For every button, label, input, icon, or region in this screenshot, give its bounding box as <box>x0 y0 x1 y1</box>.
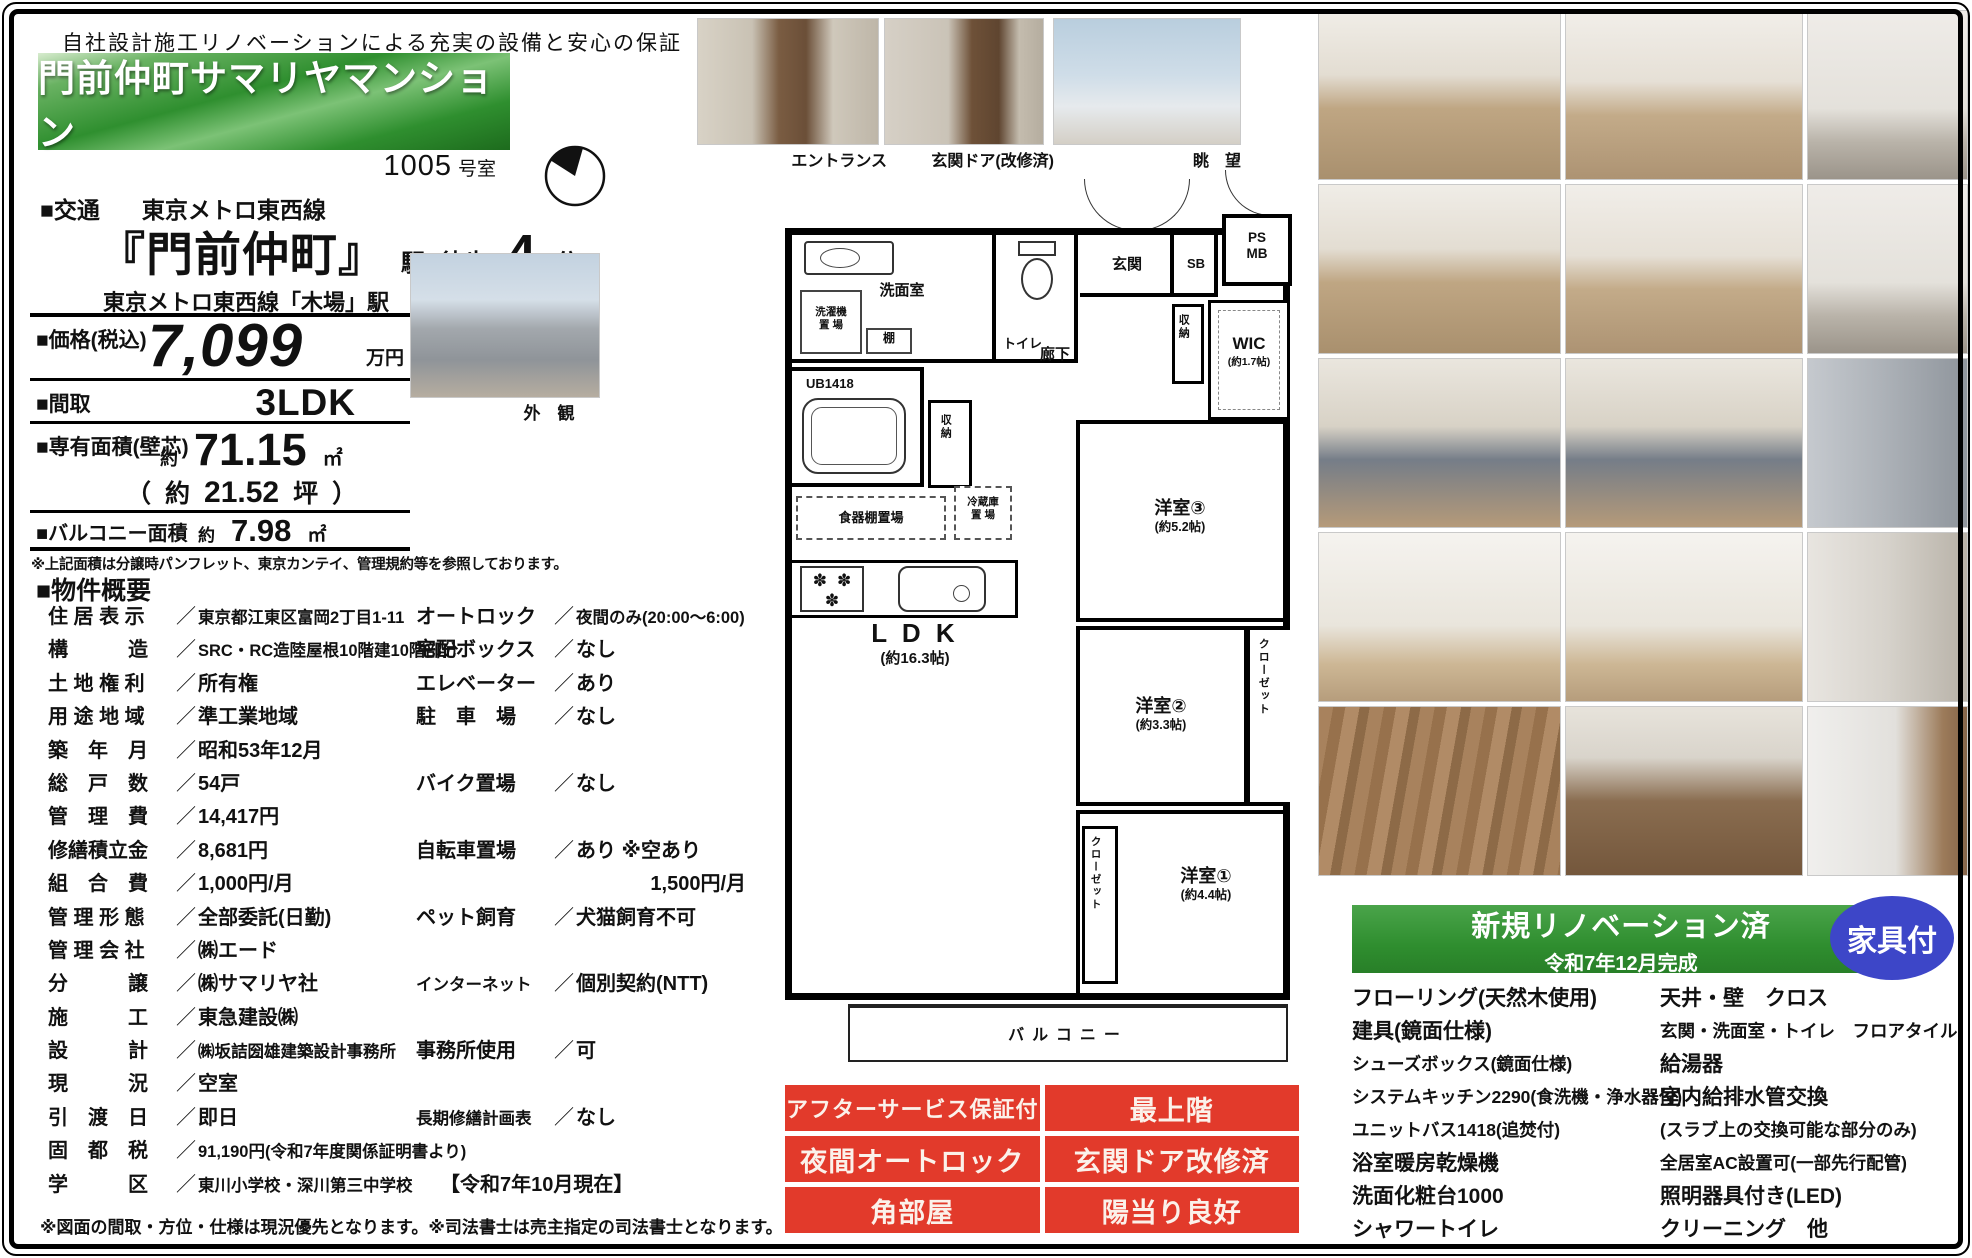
overview-row: 管 理 費／14,417円 <box>48 800 770 833</box>
photo-kitchen <box>1565 358 1803 528</box>
overview-left-label: 設 計 <box>48 1034 174 1063</box>
plan-label: ■間取 <box>36 388 91 418</box>
photo-hallway <box>1807 10 1968 180</box>
stove-icon: ✽✽✽ <box>800 566 864 612</box>
overview-row: 構 造／SRC・RC造陸屋根10階建10階部分宅配ボックス／なし <box>48 633 770 666</box>
overview-right-label: 長期修繕計画表 <box>416 1105 552 1129</box>
spec-plan-row: ■間取 3LDK <box>30 381 410 424</box>
label-storage-hall: 収納 <box>1176 314 1189 340</box>
overview-left-value: ㈱エード <box>198 934 416 963</box>
bathtub-icon <box>802 398 906 474</box>
door-swing-arc <box>1225 170 1271 216</box>
spec-area-row: ■専有面積(壁芯) 約 71.15 ㎡ （ 約 21.52 坪 ） <box>30 424 410 513</box>
overview-right-value: あり ※空あり <box>576 834 770 863</box>
label-closet-2: クローゼット <box>1256 638 1269 716</box>
label-bedroom-2-size: (約3.3帖) <box>1086 718 1236 733</box>
slash-separator: ／ <box>552 901 576 930</box>
feature-item: 全居室AC設置可(一部先行配管) <box>1660 1147 1968 1180</box>
overview-left-label: 管 理 費 <box>48 800 174 829</box>
door-swing-arc <box>1138 179 1190 231</box>
overview-row: 住 居 表 示／東京都江東区富岡2丁目1-11オートロック／夜間のみ(20:00… <box>48 600 770 633</box>
feature-badge: アフターサービス保証付 <box>785 1085 1040 1131</box>
slash-separator: ／ <box>174 667 198 696</box>
furniture-badge: 家具付 <box>1830 896 1954 980</box>
slash-separator: ／ <box>174 901 198 930</box>
overview-row: 固 都 税／91,190円(令和7年度関係証明書より) <box>48 1134 770 1167</box>
photo-entrance <box>697 18 879 145</box>
overview-right-value: なし <box>576 1101 770 1130</box>
photo-bedroom <box>1318 532 1561 702</box>
tsubo-open: （ <box>126 474 151 510</box>
feature-item: 洗面化粧台1000 <box>1352 1180 1658 1213</box>
overview-left-label: 築 年 月 <box>48 734 174 763</box>
toilet-icon <box>1018 241 1056 256</box>
tsubo-unit: 坪 <box>293 474 318 510</box>
overview-right-label: 宅配ボックス <box>416 633 552 662</box>
slash-separator: ／ <box>174 1168 198 1197</box>
overview-left-value: 即日 <box>198 1101 416 1130</box>
overview-right-label: ペット飼育 <box>416 901 552 930</box>
feature-badge: 陽当り良好 <box>1045 1187 1300 1233</box>
label-bedroom-1-size: (約4.4帖) <box>1136 888 1276 903</box>
overview-right-value: なし <box>576 767 770 796</box>
photo-view <box>1053 18 1241 145</box>
overview-left-label: 修繕積立金 <box>48 834 174 863</box>
label-shelf: 棚 <box>866 331 912 345</box>
photo-dining <box>1565 10 1803 180</box>
feature-item: 浴室暖房乾燥機 <box>1352 1147 1658 1180</box>
features-left-column: フローリング(天然木使用)建具(鏡面仕様)シューズボックス(鏡面仕様)システムキ… <box>1352 982 1658 1246</box>
overview-right-label: 自転車置場 <box>416 834 552 863</box>
feature-item: 照明器具付き(LED) <box>1660 1180 1968 1213</box>
renovation-title: 新規リノベーション済 <box>1471 903 1770 945</box>
access-label: ■交通 <box>40 191 100 225</box>
label-bedroom-1: 洋室① <box>1136 866 1276 888</box>
slash-separator: ／ <box>174 633 198 662</box>
feature-item: 天井・壁 クロス <box>1660 982 1968 1015</box>
label-hallway: 廊下 <box>1020 346 1090 364</box>
price-value: 7,099 <box>148 311 303 380</box>
overview-right-label: オートロック <box>416 600 552 629</box>
overview-row: 管 理 会 社／㈱エード <box>48 934 770 967</box>
caption-exterior: 外 観 <box>498 399 600 424</box>
overview-row: 学 区／東川小学校・深川第三中学校【令和7年10月現在】 <box>48 1168 770 1201</box>
feature-item: (スラブ上の交換可能な部分のみ) <box>1660 1114 1968 1147</box>
overview-row: 分 譲／㈱サマリヤ社インターネット／個別契約(NTT) <box>48 967 770 1000</box>
photo-graydoor <box>1807 358 1968 528</box>
label-bedroom-3: 洋室③ <box>1100 498 1260 520</box>
photo-washbasin <box>1807 706 1968 876</box>
overview-left-value: 全部委託(日勤) <box>198 901 416 930</box>
slash-separator: ／ <box>174 1034 198 1063</box>
slash-separator: ／ <box>552 1034 576 1063</box>
slash-separator: ／ <box>174 967 198 996</box>
features-right-column: 天井・壁 クロス玄関・洗面室・トイレ フロアタイル給湯器室内給排水管交換(スラブ… <box>1660 982 1968 1246</box>
slash-separator: ／ <box>174 867 198 896</box>
label-bedroom-2: 洋室② <box>1086 696 1236 718</box>
overview-left-label: 現 況 <box>48 1067 174 1096</box>
overview-left-label: 総 戸 数 <box>48 767 174 796</box>
room-number-unit: 号室 <box>458 159 496 180</box>
overview-right-value: 可 <box>576 1034 770 1063</box>
overview-right-label: 事務所使用 <box>416 1034 552 1063</box>
overview-right-value: 犬猫飼育不可 <box>576 901 770 930</box>
overview-left-label: 住 居 表 示 <box>48 600 174 629</box>
overview-left-label: 管 理 形 態 <box>48 901 174 930</box>
overview-left-value: 所有権 <box>198 667 416 696</box>
price-label: ■価格(税込) <box>36 324 147 354</box>
overview-left-value: 8,681円 <box>198 834 416 863</box>
slash-separator: ／ <box>174 767 198 796</box>
overview-left-value: 東急建設㈱ <box>198 1001 416 1030</box>
photo-living <box>1318 184 1561 354</box>
slash-separator: ／ <box>552 633 576 662</box>
label-washroom: 洗面室 <box>862 282 942 300</box>
photo-dining <box>1565 184 1803 354</box>
slash-separator: ／ <box>552 767 576 796</box>
photo-kitchen <box>1318 358 1561 528</box>
door-swing-arc <box>1084 179 1136 231</box>
kitchen-sink-icon <box>898 566 986 612</box>
slash-separator: ／ <box>174 734 198 763</box>
overview-row: 管 理 形 態／全部委託(日勤)ペット飼育／犬猫飼育不可 <box>48 901 770 934</box>
toilet-icon <box>1021 258 1053 300</box>
overview-right-label: インターネット <box>416 971 552 995</box>
label-ldk-size: (約16.3帖) <box>848 650 982 668</box>
photo-exterior <box>410 253 600 398</box>
overview-left-value: ㈱坂詰圀雄建築設計事務所 <box>198 1038 416 1062</box>
overview-left-label: 引 渡 日 <box>48 1101 174 1130</box>
feature-item: システムキッチン2290(食洗機・浄水器付) <box>1352 1081 1658 1114</box>
area-unit: ㎡ <box>323 442 343 471</box>
station-name: 『門前仲町』 <box>98 216 386 285</box>
photo-woodfloor <box>1318 706 1561 876</box>
overview-left-value: 54戸 <box>198 767 416 796</box>
photo-vanity <box>1565 706 1803 876</box>
spec-table: ■価格(税込) 7,099 万円 ■間取 3LDK ■専有面積(壁芯) 約 71… <box>30 313 410 551</box>
slash-separator: ／ <box>552 700 576 729</box>
overview-row: 総 戸 数／54戸バイク置場／なし <box>48 767 770 800</box>
label-balcony: バルコニー <box>1008 1021 1128 1045</box>
balcony-unit: ㎡ <box>307 520 326 547</box>
overview-row: 設 計／㈱坂詰圀雄建築設計事務所事務所使用／可 <box>48 1034 770 1067</box>
feature-item: 給湯器 <box>1660 1048 1968 1081</box>
feature-badge: 玄関ドア改修済 <box>1045 1136 1300 1182</box>
label-closet-1: クローゼット <box>1089 836 1102 911</box>
overview-row: 築 年 月／昭和53年12月 <box>48 734 770 767</box>
overview-left-label: 分 譲 <box>48 967 174 996</box>
area-value: 71.15 <box>194 424 307 476</box>
balcony: バルコニー <box>848 1004 1288 1062</box>
slash-separator: ／ <box>174 834 198 863</box>
overview-row: 引 渡 日／即日長期修繕計画表／なし <box>48 1101 770 1134</box>
overview-left-value: ㈱サマリヤ社 <box>198 967 416 996</box>
feature-item: クリーニング 他 <box>1660 1213 1968 1246</box>
flyer-page: 自社設計施工リノベーションによる充実の設備と安心の保証 門前仲町サマリヤマンショ… <box>0 0 1972 1258</box>
overview-extra-value: 1,500円/月 <box>416 867 770 896</box>
overview-right-label: エレベーター <box>416 667 552 696</box>
feature-item: 建具(鏡面仕様) <box>1352 1015 1658 1048</box>
overview-right-value: なし <box>576 633 770 662</box>
balcony-label: ■バルコニー面積 <box>36 517 188 546</box>
property-name-banner: 門前仲町サマリヤマンション <box>38 53 510 150</box>
label-bath: UB1418 <box>806 376 886 392</box>
tsubo-approx: 約 <box>165 474 190 510</box>
overview-footnote: ※図面の間取・方位・仕様は現況優先となります。※司法書士は売主指定の司法書士とな… <box>40 1213 783 1238</box>
balcony-value: 7.98 <box>231 513 291 549</box>
floor-plan: 洗面室 洗濯機 置 場 棚 トイレ 玄関 SB PS MB 廊下 収納 WIC … <box>770 168 1305 1073</box>
spec-balcony-row: ■バルコニー面積 約 7.98 ㎡ <box>30 513 410 547</box>
label-wic-size: (約1.7帖) <box>1208 356 1290 369</box>
label-fridge: 冷蔵庫 置 場 <box>954 496 1012 521</box>
feature-badge: 夜間オートロック <box>785 1136 1040 1182</box>
label-cupboard: 食器棚置場 <box>796 510 946 526</box>
overview-left-label: 土 地 権 利 <box>48 667 174 696</box>
slash-separator: ／ <box>174 1001 198 1030</box>
overview-left-value: 東川小学校・深川第三中学校 <box>198 1172 416 1196</box>
label-ldk: L D K <box>848 618 982 649</box>
slash-separator: ／ <box>174 1101 198 1130</box>
slash-separator: ／ <box>174 800 198 829</box>
slash-separator: ／ <box>552 667 576 696</box>
overview-row: 組 合 費／1,000円/月1,500円/月 <box>48 867 770 900</box>
overview-left-value: 昭和53年12月 <box>198 734 416 763</box>
photo-hallway <box>1807 184 1968 354</box>
overview-left-label: 管 理 会 社 <box>48 934 174 963</box>
feature-item: フローリング(天然木使用) <box>1352 982 1658 1015</box>
overview-left-label: 構 造 <box>48 633 174 662</box>
slash-separator: ／ <box>174 700 198 729</box>
slash-separator: ／ <box>174 1134 198 1163</box>
overview-left-label: 組 合 費 <box>48 867 174 896</box>
tsubo-value: 21.52 <box>204 476 279 510</box>
overview-left-value: 空室 <box>198 1067 416 1096</box>
area-approx: 約 <box>160 445 178 471</box>
overview-left-label: 用 途 地 域 <box>48 700 174 729</box>
label-ps-mb: PS MB <box>1222 230 1292 262</box>
room-number-value: 1005 <box>383 150 452 182</box>
slash-separator: ／ <box>174 934 198 963</box>
overview-row: 施 工／東急建設㈱ <box>48 1001 770 1034</box>
label-wic: WIC <box>1208 334 1290 354</box>
washbasin-icon <box>804 241 894 275</box>
feature-item: シャワートイレ <box>1352 1213 1658 1246</box>
slash-separator: ／ <box>552 834 576 863</box>
overview-right-value: なし <box>576 700 770 729</box>
overview-left-value: 準工業地域 <box>198 700 416 729</box>
feature-item: 玄関・洗面室・トイレ フロアタイル <box>1660 1015 1968 1048</box>
overview-right-value: あり <box>576 667 770 696</box>
label-bedroom-3-size: (約5.2帖) <box>1100 520 1260 535</box>
overview-left-value: SRC・RC造陸屋根10階建10階部分 <box>198 637 416 661</box>
overview-row: 修繕積立金／8,681円自転車置場／あり ※空あり <box>48 834 770 867</box>
slash-separator: ／ <box>552 1101 576 1130</box>
photo-bedroom <box>1565 532 1803 702</box>
photo-closet <box>1807 532 1968 702</box>
photo-front-door <box>884 18 1044 145</box>
overview-left-value: 91,190円(令和7年度関係証明書より) <box>198 1138 416 1162</box>
photo-living <box>1318 10 1561 180</box>
feature-item: シューズボックス(鏡面仕様) <box>1352 1048 1658 1081</box>
label-storage-2: 収納 <box>938 414 951 440</box>
overview-row: 土 地 権 利／所有権エレベーター／あり <box>48 667 770 700</box>
label-entrance: 玄関 <box>1080 256 1174 274</box>
overview-left-value: 東京都江東区富岡2丁目1-11 <box>198 604 416 628</box>
overview-row: 用 途 地 域／準工業地域駐 車 場／なし <box>48 700 770 733</box>
slash-separator: ／ <box>552 967 576 996</box>
label-shoebox: SB <box>1174 256 1218 272</box>
overview-left-value: 14,417円 <box>198 800 416 829</box>
feature-item: 室内給排水管交換 <box>1660 1081 1968 1114</box>
overview-extra-value: 【令和7年10月現在】 <box>416 1168 770 1197</box>
feature-badge: 角部屋 <box>785 1187 1040 1233</box>
compass-icon <box>543 144 607 208</box>
overview-left-label: 学 区 <box>48 1168 174 1197</box>
price-unit: 万円 <box>366 343 404 370</box>
spec-price-row: ■価格(税込) 7,099 万円 <box>30 317 410 381</box>
property-name: 門前仲町サマリヤマンション <box>38 48 510 156</box>
label-washer: 洗濯機 置 場 <box>800 306 862 331</box>
overview-left-value: 1,000円/月 <box>198 867 416 896</box>
overview-left-label: 施 工 <box>48 1001 174 1030</box>
slash-separator: ／ <box>174 600 198 629</box>
overview-row: 現 況／空室 <box>48 1067 770 1100</box>
plan-value: 3LDK <box>255 382 356 424</box>
overview-right-label: 駐 車 場 <box>416 700 552 729</box>
feature-item: ユニットバス1418(追焚付) <box>1352 1114 1658 1147</box>
overview-right-value: 夜間のみ(20:00～6:00) <box>576 604 770 628</box>
overview-right-label: バイク置場 <box>416 767 552 796</box>
slash-separator: ／ <box>552 600 576 629</box>
renovation-date: 令和7年12月完成 <box>1544 947 1697 976</box>
feature-badge: 最上階 <box>1045 1085 1300 1131</box>
photo-grid <box>1318 10 1968 876</box>
feature-badges: アフターサービス保証付最上階夜間オートロック玄関ドア改修済角部屋陽当り良好 <box>785 1085 1299 1233</box>
overview-right-value: 個別契約(NTT) <box>576 967 770 996</box>
overview-left-label: 固 都 税 <box>48 1134 174 1163</box>
tsubo-close: ） <box>332 474 357 510</box>
room-number: 1005号室 <box>300 150 496 183</box>
overview-table: 住 居 表 示／東京都江東区富岡2丁目1-11オートロック／夜間のみ(20:00… <box>48 600 770 1201</box>
renovation-banner: 新規リノベーション済 令和7年12月完成 <box>1352 905 1890 973</box>
balcony-approx: 約 <box>198 521 215 546</box>
slash-separator: ／ <box>174 1067 198 1096</box>
